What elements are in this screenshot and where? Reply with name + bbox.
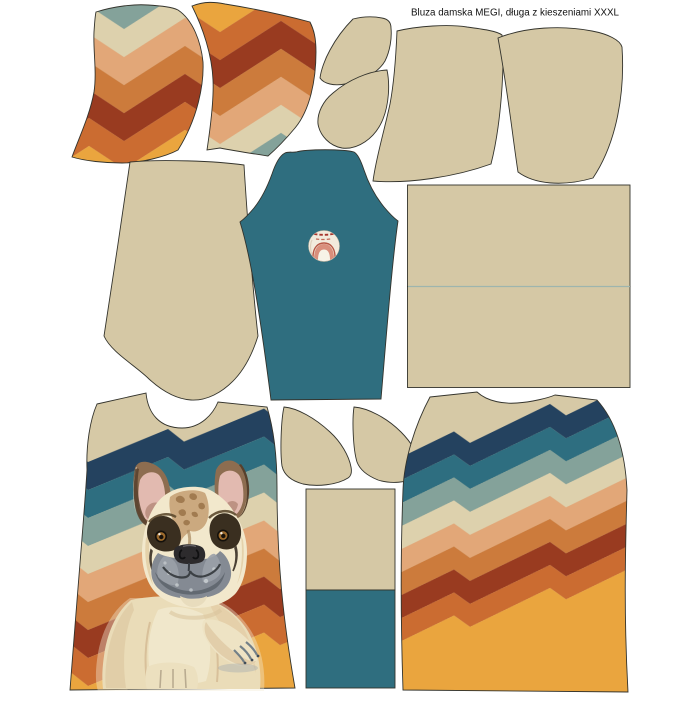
svg-text:Bluza damska MEGI, długa z kie: Bluza damska MEGI, długa z kieszeniami X…	[411, 8, 620, 19]
